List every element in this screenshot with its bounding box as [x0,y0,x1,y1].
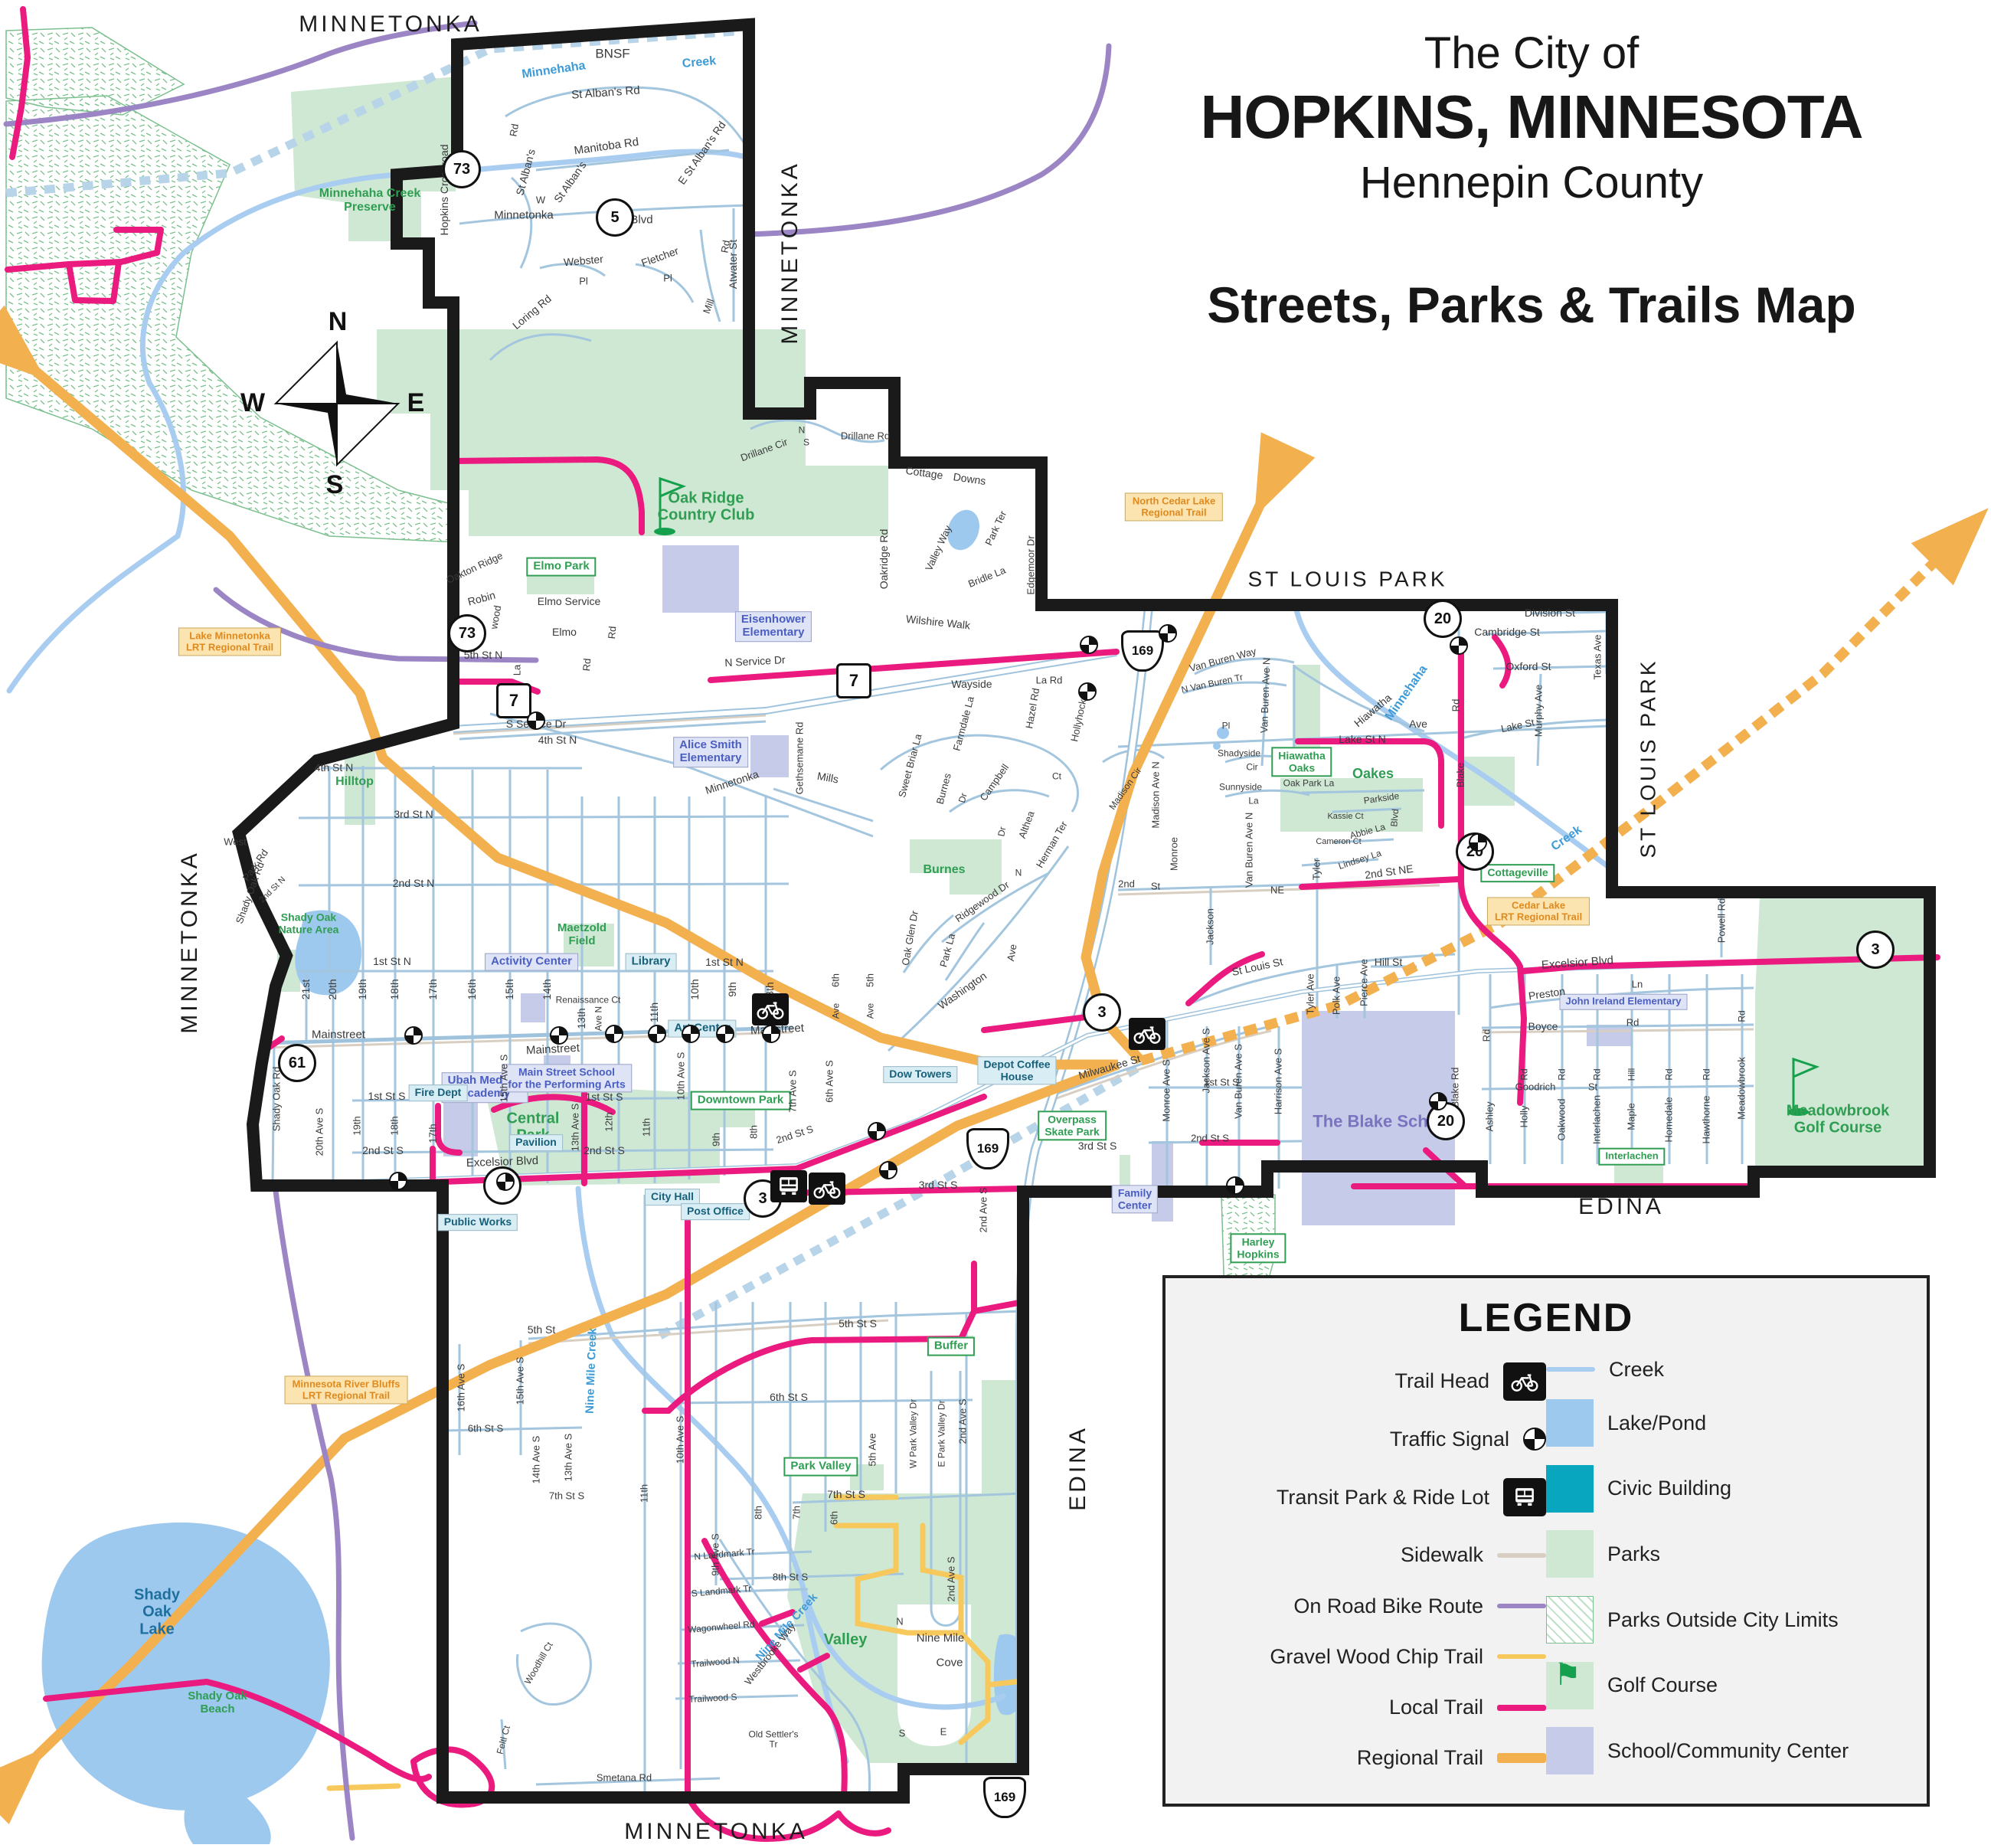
legend-swatch-creek [1546,1367,1595,1372]
signal-icon [868,1122,886,1140]
legend-title: LEGEND [1166,1295,1927,1341]
route-marker-61: 61 [278,1044,316,1082]
legend-swatch-trailhead [1503,1362,1546,1401]
legend-item-gravel: Gravel Wood Chip Trail [1188,1645,1546,1669]
legend-swatch-bike-route [1497,1604,1546,1608]
legend-item-label: Local Trail [1389,1696,1483,1719]
legend-left-column: Trail Head Traffic SignalTransit Park & … [1188,1349,1546,1784]
legend-item-label: Sidewalk [1401,1543,1483,1567]
legend-item-parks: Parks [1546,1530,1904,1578]
signal-icon [1226,1176,1244,1195]
route-marker-3: 3 [1856,931,1895,969]
legend-right-column: CreekLake/PondCivic BuildingParksParks O… [1546,1349,1904,1784]
legend-item-label: Transit Park & Ride Lot [1277,1486,1489,1509]
map-subtitle: Streets, Parks & Trails Map [1195,276,1868,334]
legend-swatch-signal [1523,1428,1546,1451]
signal-icon [527,711,545,730]
signal-icon [762,1025,780,1043]
legend-swatch-gravel [1497,1654,1546,1659]
route-marker-20: 20 [1424,600,1462,638]
legend-item-regional: Regional Trail [1188,1746,1546,1770]
legend-item-label: Golf Course [1607,1673,1718,1697]
signal-icon [1469,833,1487,852]
signal-icon [682,1025,700,1043]
legend-item-bike-route: On Road Bike Route [1188,1595,1546,1618]
legend-item-label: Regional Trail [1357,1746,1483,1770]
legend-swatch-sidewalk [1497,1553,1546,1558]
signal-icon [496,1173,515,1191]
legend-item-label: Gravel Wood Chip Trail [1270,1645,1483,1669]
legend-item-creek: Creek [1546,1358,1904,1382]
title-city-of: The City of [1195,28,1868,79]
map-page: The City of HOPKINS, MINNESOTA Hennepin … [0,0,1991,1848]
legend-item-label: Creek [1609,1358,1664,1382]
legend-item-transit: Transit Park & Ride Lot [1188,1478,1546,1516]
legend-swatch-parks-outside [1546,1596,1594,1644]
trailhead-icon [809,1173,845,1205]
title-county: Hennepin County [1195,157,1868,208]
signal-icon [404,1026,423,1045]
legend-item-label: Trail Head [1394,1369,1489,1393]
legend-columns: Trail Head Traffic SignalTransit Park & … [1166,1341,1927,1804]
legend-item-label: Civic Building [1607,1477,1731,1500]
legend-item-local: Local Trail [1188,1696,1546,1719]
legend-panel: LEGEND Trail Head Traffic SignalTransit … [1162,1275,1930,1807]
signal-icon [879,1161,897,1179]
legend-item-sidewalk: Sidewalk [1188,1543,1546,1567]
trailhead-icon [1129,1018,1166,1050]
legend-item-lake: Lake/Pond [1546,1399,1904,1447]
signal-icon [1159,624,1177,643]
signal-icon [389,1172,407,1190]
signal-icon [1429,1092,1447,1110]
legend-item-label: School/Community Center [1607,1739,1849,1763]
legend-item-school: School/Community Center [1546,1727,1904,1774]
legend-item-label: Traffic Signal [1390,1428,1509,1451]
legend-item-signal: Traffic Signal [1188,1428,1546,1451]
legend-swatch-regional [1497,1753,1546,1763]
trailhead-icon [752,993,789,1025]
signal-icon [648,1025,666,1043]
title-block: The City of HOPKINS, MINNESOTA Hennepin … [1195,28,1868,334]
legend-item-label: Lake/Pond [1607,1411,1706,1435]
legend-swatch-school [1546,1727,1594,1774]
signal-icon [605,1025,623,1043]
legend-item-parks-outside: Parks Outside City Limits [1546,1596,1904,1644]
legend-item-golf: Golf Course [1546,1662,1904,1709]
route-marker-7: 7 [836,663,871,698]
signal-icon [1078,682,1097,701]
route-marker-73: 73 [443,150,481,188]
legend-item-label: On Road Bike Route [1293,1595,1483,1618]
title-city-name: HOPKINS, MINNESOTA [1195,82,1868,152]
route-marker-73: 73 [448,614,486,653]
legend-swatch-parks [1546,1530,1594,1578]
signal-icon [1080,636,1098,654]
route-marker-7: 7 [496,683,531,718]
signal-icon [716,1025,734,1043]
legend-swatch-local [1497,1705,1546,1711]
route-marker-5: 5 [596,198,634,237]
legend-swatch-lake [1546,1399,1594,1447]
transit-icon [770,1170,807,1202]
signal-icon [1450,636,1468,655]
golf-flag-icon [654,479,1816,1116]
legend-swatch-civic [1546,1465,1594,1513]
legend-item-label: Parks Outside City Limits [1607,1608,1839,1632]
legend-item-label: Parks [1607,1542,1660,1566]
legend-swatch-golf [1546,1662,1594,1709]
signal-icon [550,1026,568,1045]
route-marker-3: 3 [1083,993,1121,1032]
legend-swatch-transit [1503,1478,1546,1516]
legend-item-civic: Civic Building [1546,1465,1904,1513]
legend-item-trailhead: Trail Head [1188,1362,1546,1401]
